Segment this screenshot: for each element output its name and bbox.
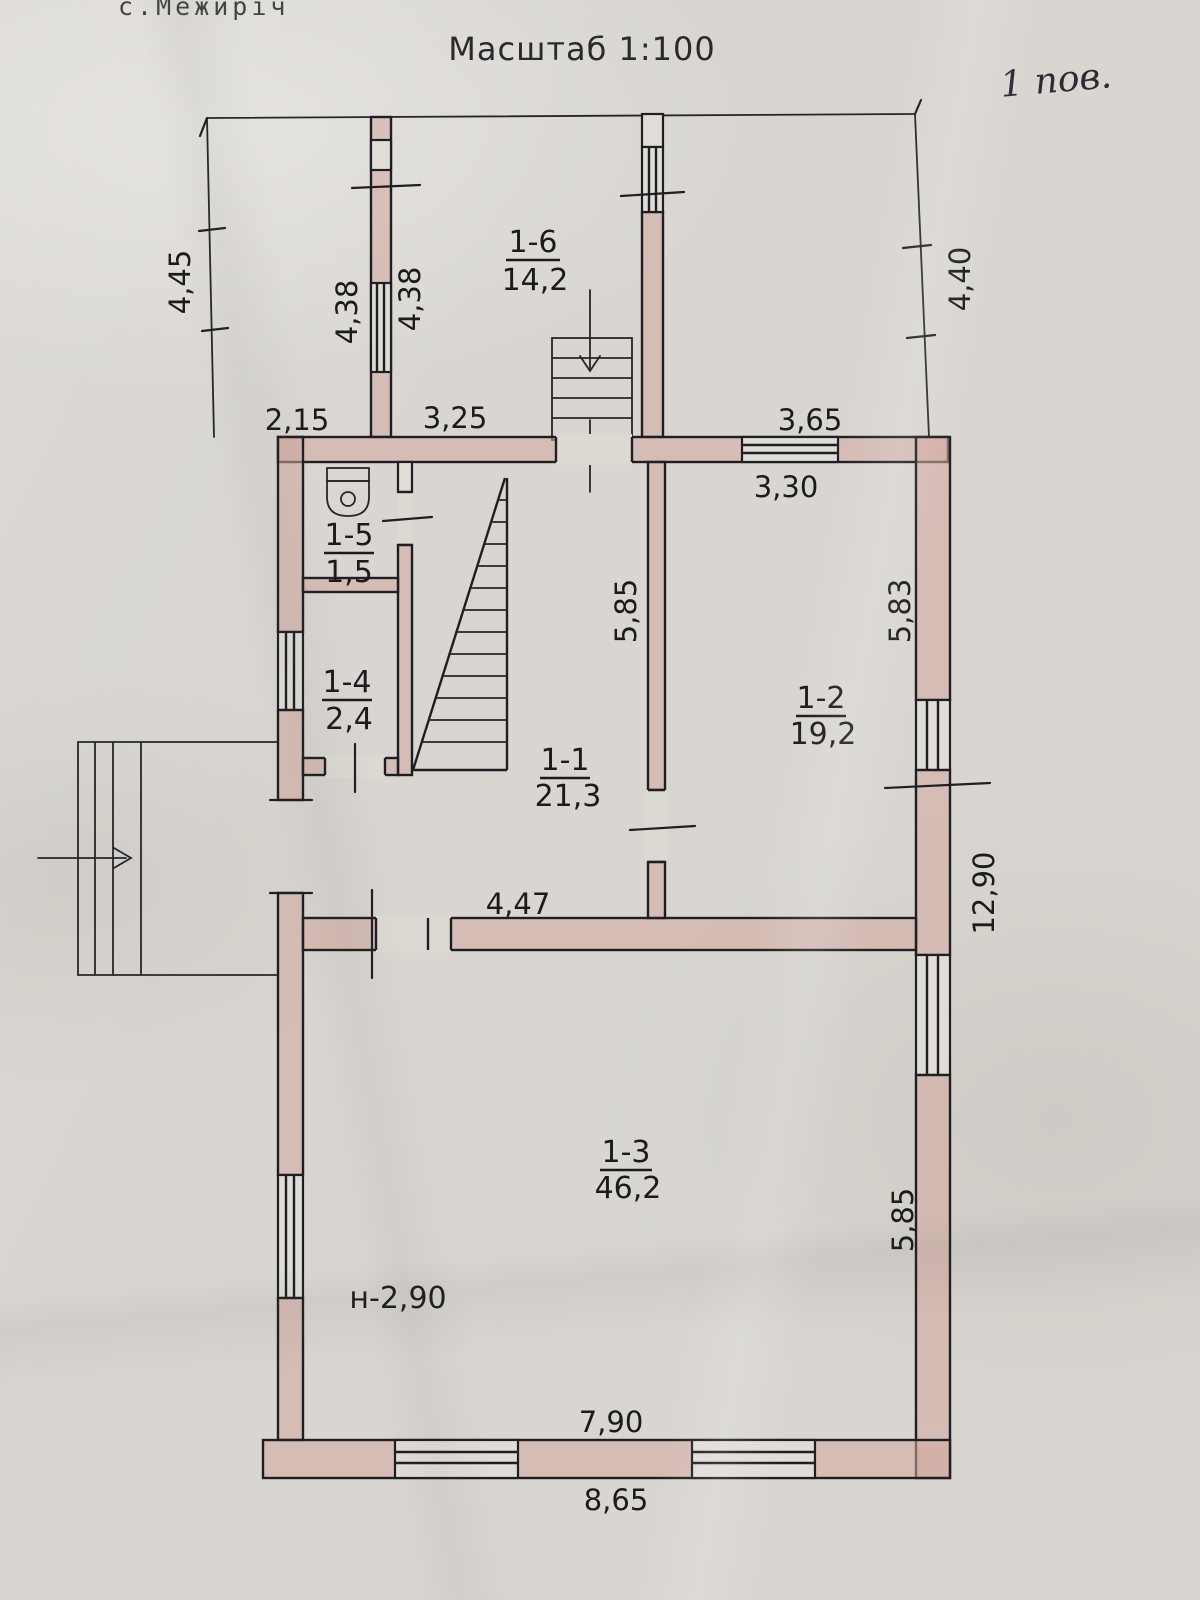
middle-wall — [303, 890, 916, 978]
dim-room11-depth: 5,85 — [609, 579, 643, 644]
wall — [398, 545, 412, 775]
wall — [278, 437, 303, 632]
room-1-1-id: 1-1 — [541, 743, 590, 778]
south-wall — [263, 1440, 950, 1478]
window — [642, 147, 663, 212]
wall — [278, 1298, 303, 1440]
veranda-edge-ticks — [199, 100, 935, 338]
dim-south-total: 8,65 — [584, 1483, 649, 1517]
window — [278, 1175, 303, 1298]
window — [916, 955, 950, 1075]
toilet-drain — [341, 492, 355, 506]
wall — [642, 212, 663, 437]
wall — [648, 862, 665, 918]
room-1-6-id: 1-6 — [509, 225, 558, 260]
partition-11-12 — [630, 462, 695, 918]
window — [278, 632, 303, 710]
room-1-2-id: 1-2 — [797, 681, 846, 716]
toilet-tank — [327, 468, 369, 481]
dim-room11-width: 4,47 — [486, 887, 551, 921]
wall — [916, 437, 950, 700]
dim-veranda-window: 3,65 — [778, 403, 843, 437]
wall — [648, 462, 665, 790]
room-1-3-id: 1-3 — [602, 1135, 651, 1170]
dim-veranda-bottom-left: 2,15 — [265, 403, 330, 437]
door-opening — [556, 434, 632, 465]
room-1-4-id: 1-4 — [323, 665, 372, 700]
main-stairs — [413, 478, 507, 770]
room-1-3-area: 46,2 — [595, 1171, 662, 1206]
dim-veranda-right: 4,40 — [943, 247, 977, 312]
stair-outline — [552, 338, 632, 440]
wall-break — [398, 462, 412, 492]
window — [692, 1440, 815, 1478]
north-wall — [278, 434, 948, 465]
wall — [263, 1440, 950, 1478]
dim-veranda-mid-right: 4,38 — [393, 267, 427, 332]
dim-tick — [352, 185, 420, 188]
dim-veranda-mid-left: 4,38 — [330, 280, 364, 345]
floor-plan-scan: с.Межиріч Масштаб 1:100 1 пов. — [0, 0, 1200, 1600]
stair-treads — [422, 500, 507, 742]
wall-break — [371, 140, 391, 170]
ceiling-height-note: н-2,90 — [349, 1281, 446, 1316]
scale-title: Масштаб 1:100 — [448, 30, 715, 68]
room-1-6-area: 14,2 — [502, 263, 569, 298]
dim-east-total: 12,90 — [967, 851, 1001, 934]
dim-veranda-left: 4,45 — [163, 250, 197, 315]
dim-room12-width: 3,30 — [754, 470, 819, 504]
door-opening — [376, 915, 451, 953]
wall — [278, 893, 303, 1175]
dim-room13-window-span: 7,90 — [579, 1405, 644, 1439]
wall-break — [642, 114, 663, 147]
dim-room13-depth: 5,85 — [886, 1188, 920, 1253]
veranda-top-edge — [207, 114, 915, 118]
veranda-right-edge — [915, 114, 929, 437]
dim-veranda-bottom-mid: 3,25 — [423, 401, 488, 435]
floor-note-handwritten: 1 пов. — [999, 55, 1114, 106]
room-1-4-area: 2,4 — [325, 702, 373, 737]
room-1-2-area: 19,2 — [790, 717, 857, 752]
wc-walls — [303, 462, 432, 792]
window — [742, 437, 838, 462]
window — [371, 283, 391, 372]
veranda-partition-right — [621, 114, 684, 437]
wall — [278, 710, 303, 800]
door-opening — [645, 790, 668, 862]
dim-room12-depth: 5,83 — [883, 579, 917, 644]
veranda-left-edge — [207, 118, 214, 437]
room-1-5-area: 1,5 — [325, 555, 373, 590]
entrance-porch — [38, 742, 278, 975]
room-1-5-id: 1-5 — [325, 518, 374, 553]
toilet-icon — [327, 468, 369, 516]
wall — [916, 770, 950, 955]
wall — [916, 1075, 950, 1478]
location-label: с.Межиріч — [118, 0, 289, 21]
window — [916, 700, 950, 770]
window — [395, 1440, 518, 1478]
room-1-1-area: 21,3 — [535, 779, 602, 814]
toilet-bowl — [327, 481, 369, 516]
